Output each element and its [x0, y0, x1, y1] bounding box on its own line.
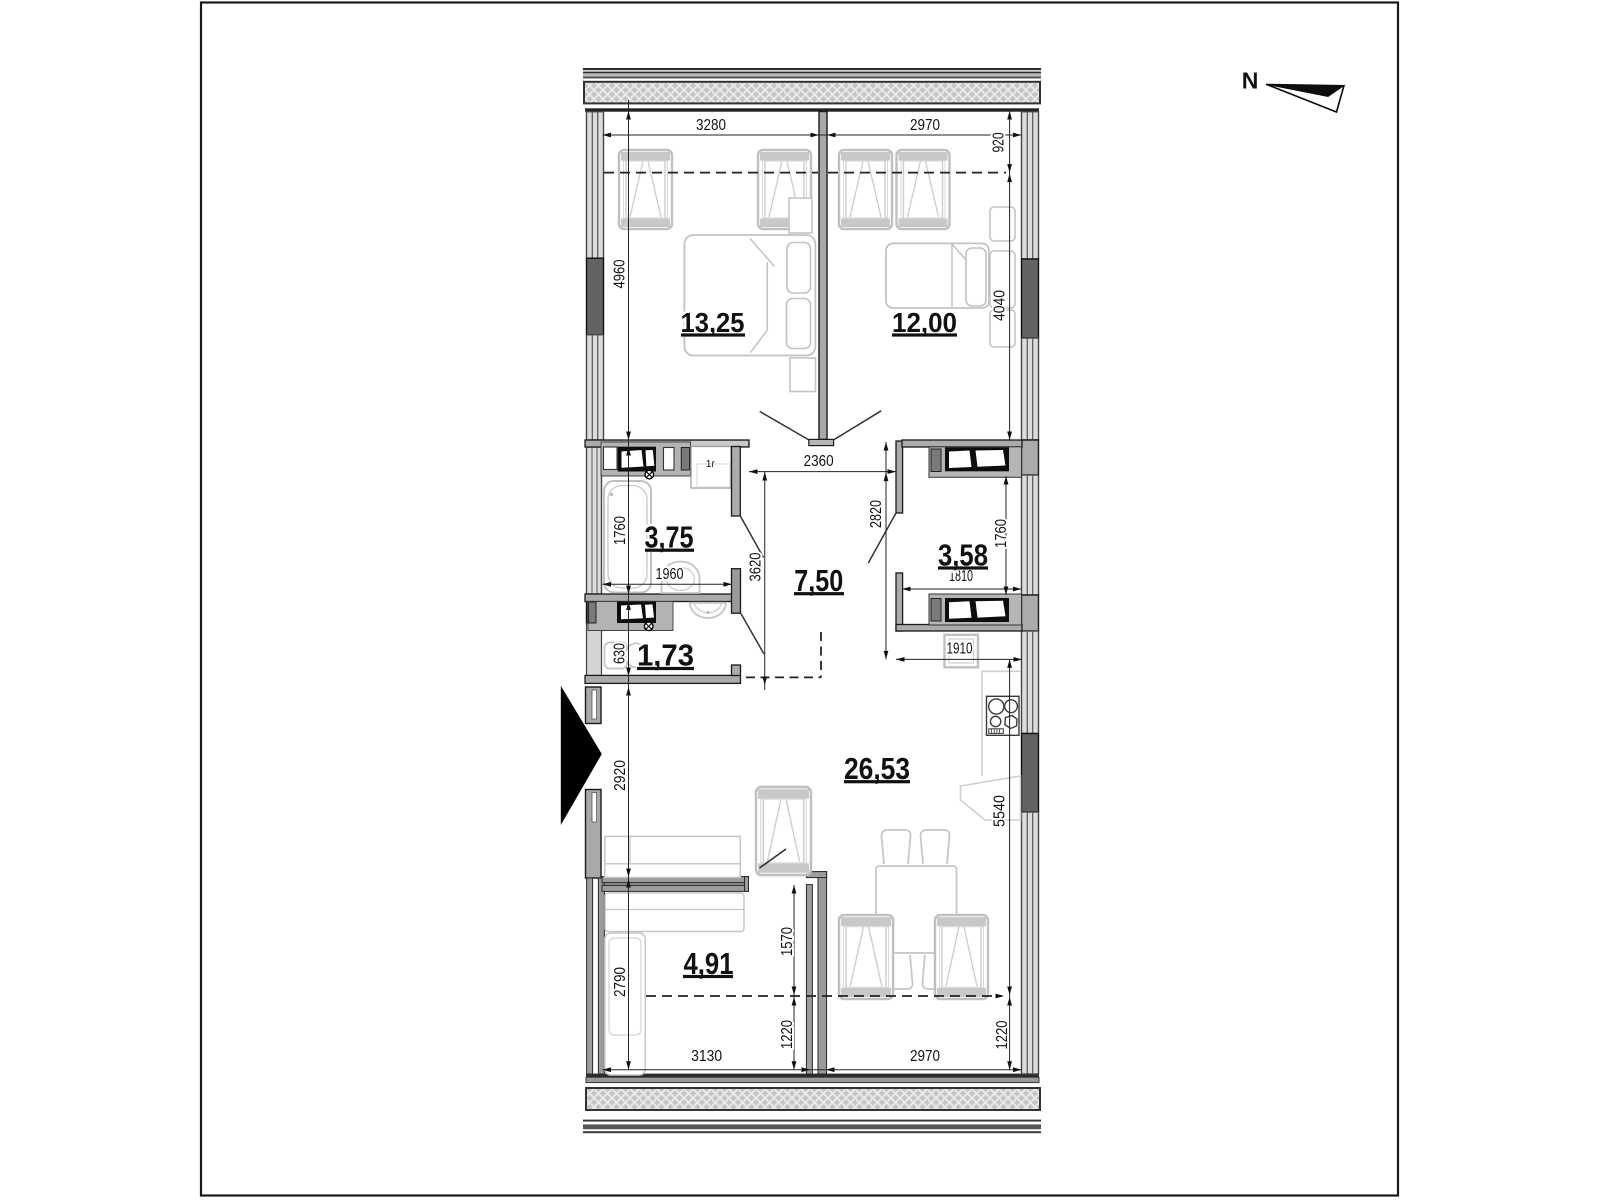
- svg-text:5540: 5540: [992, 795, 1009, 827]
- svg-text:920: 920: [991, 132, 1008, 152]
- svg-text:2970: 2970: [910, 1048, 940, 1065]
- svg-text:13,25: 13,25: [681, 307, 745, 338]
- svg-text:2790: 2790: [612, 967, 629, 997]
- svg-text:1760: 1760: [612, 516, 629, 545]
- svg-text:2970: 2970: [910, 117, 940, 134]
- svg-text:4040: 4040: [992, 290, 1009, 321]
- svg-text:2360: 2360: [804, 453, 834, 470]
- svg-text:1570: 1570: [779, 927, 796, 956]
- svg-text:4960: 4960: [612, 259, 629, 288]
- svg-text:3280: 3280: [696, 117, 726, 134]
- svg-text:12,00: 12,00: [892, 307, 957, 338]
- svg-text:630: 630: [612, 643, 629, 664]
- svg-text:1960: 1960: [656, 566, 684, 583]
- svg-text:2920: 2920: [612, 760, 629, 791]
- svg-text:1760: 1760: [993, 519, 1010, 548]
- svg-text:N: N: [1242, 68, 1259, 94]
- svg-text:1910: 1910: [947, 641, 973, 658]
- svg-text:1г: 1г: [706, 459, 716, 470]
- svg-text:1220: 1220: [779, 1020, 796, 1049]
- svg-text:1220: 1220: [994, 1020, 1011, 1049]
- svg-text:3620: 3620: [748, 552, 765, 581]
- svg-text:2820: 2820: [868, 500, 885, 528]
- svg-text:3130: 3130: [691, 1048, 722, 1065]
